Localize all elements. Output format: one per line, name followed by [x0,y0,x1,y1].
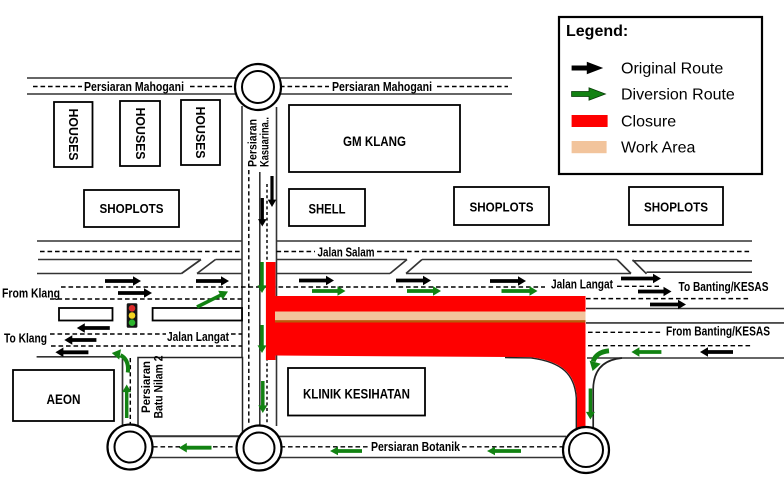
svg-text:HOUSES: HOUSES [66,109,81,161]
svg-text:Diversion Route: Diversion Route [621,87,735,104]
svg-text:GM KLANG: GM KLANG [343,133,406,149]
svg-text:SHOPLOTS: SHOPLOTS [100,201,164,216]
svg-text:Jalan Salam: Jalan Salam [318,246,375,260]
svg-text:HOUSES: HOUSES [193,107,208,159]
svg-text:Jalan Langat: Jalan Langat [551,278,614,292]
svg-text:Closure: Closure [621,114,676,131]
svg-text:Jalan Langat: Jalan Langat [167,330,230,344]
svg-text:From Banting/KESAS: From Banting/KESAS [666,325,770,339]
svg-text:SHOPLOTS: SHOPLOTS [470,200,534,215]
svg-text:HOUSES: HOUSES [133,108,148,160]
svg-text:SHOPLOTS: SHOPLOTS [644,200,708,215]
svg-text:To Klang: To Klang [4,332,47,346]
svg-text:Kasuarina..: Kasuarina.. [258,117,272,167]
svg-text:Batu Nilam 2: Batu Nilam 2 [151,355,165,418]
svg-text:Persiaran Botanik: Persiaran Botanik [371,440,460,454]
svg-text:To Banting/KESAS: To Banting/KESAS [679,280,769,294]
svg-text:From Klang: From Klang [2,287,60,301]
svg-text:Persiaran Mahogani: Persiaran Mahogani [332,80,432,94]
svg-text:KLINIK KESIHATAN: KLINIK KESIHATAN [303,387,410,402]
svg-text:Legend:: Legend: [566,23,628,40]
svg-text:AEON: AEON [47,391,81,407]
svg-text:SHELL: SHELL [309,202,346,217]
svg-text:Original Route: Original Route [621,61,723,78]
svg-text:Persiaran Mahogani: Persiaran Mahogani [84,80,184,94]
svg-text:Work Area: Work Area [621,140,696,157]
